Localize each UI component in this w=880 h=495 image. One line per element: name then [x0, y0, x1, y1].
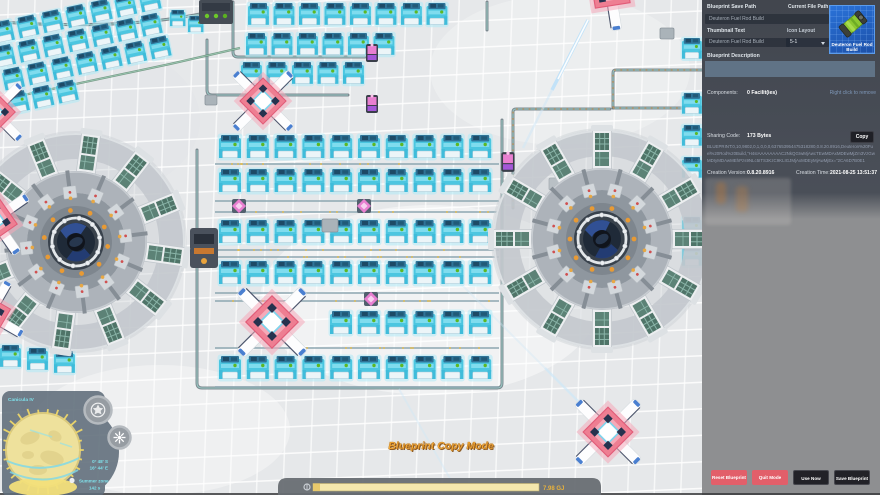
svg-text:16° 44' E: 16° 44' E	[90, 466, 108, 471]
svg-text:7.98 GJ: 7.98 GJ	[543, 486, 564, 492]
svg-text:0° 48' S: 0° 48' S	[92, 459, 108, 464]
svg-text:Canicula IV: Canicula IV	[8, 397, 35, 403]
svg-text:142 s: 142 s	[89, 486, 101, 491]
svg-text:Summer zone: Summer zone	[79, 479, 109, 484]
